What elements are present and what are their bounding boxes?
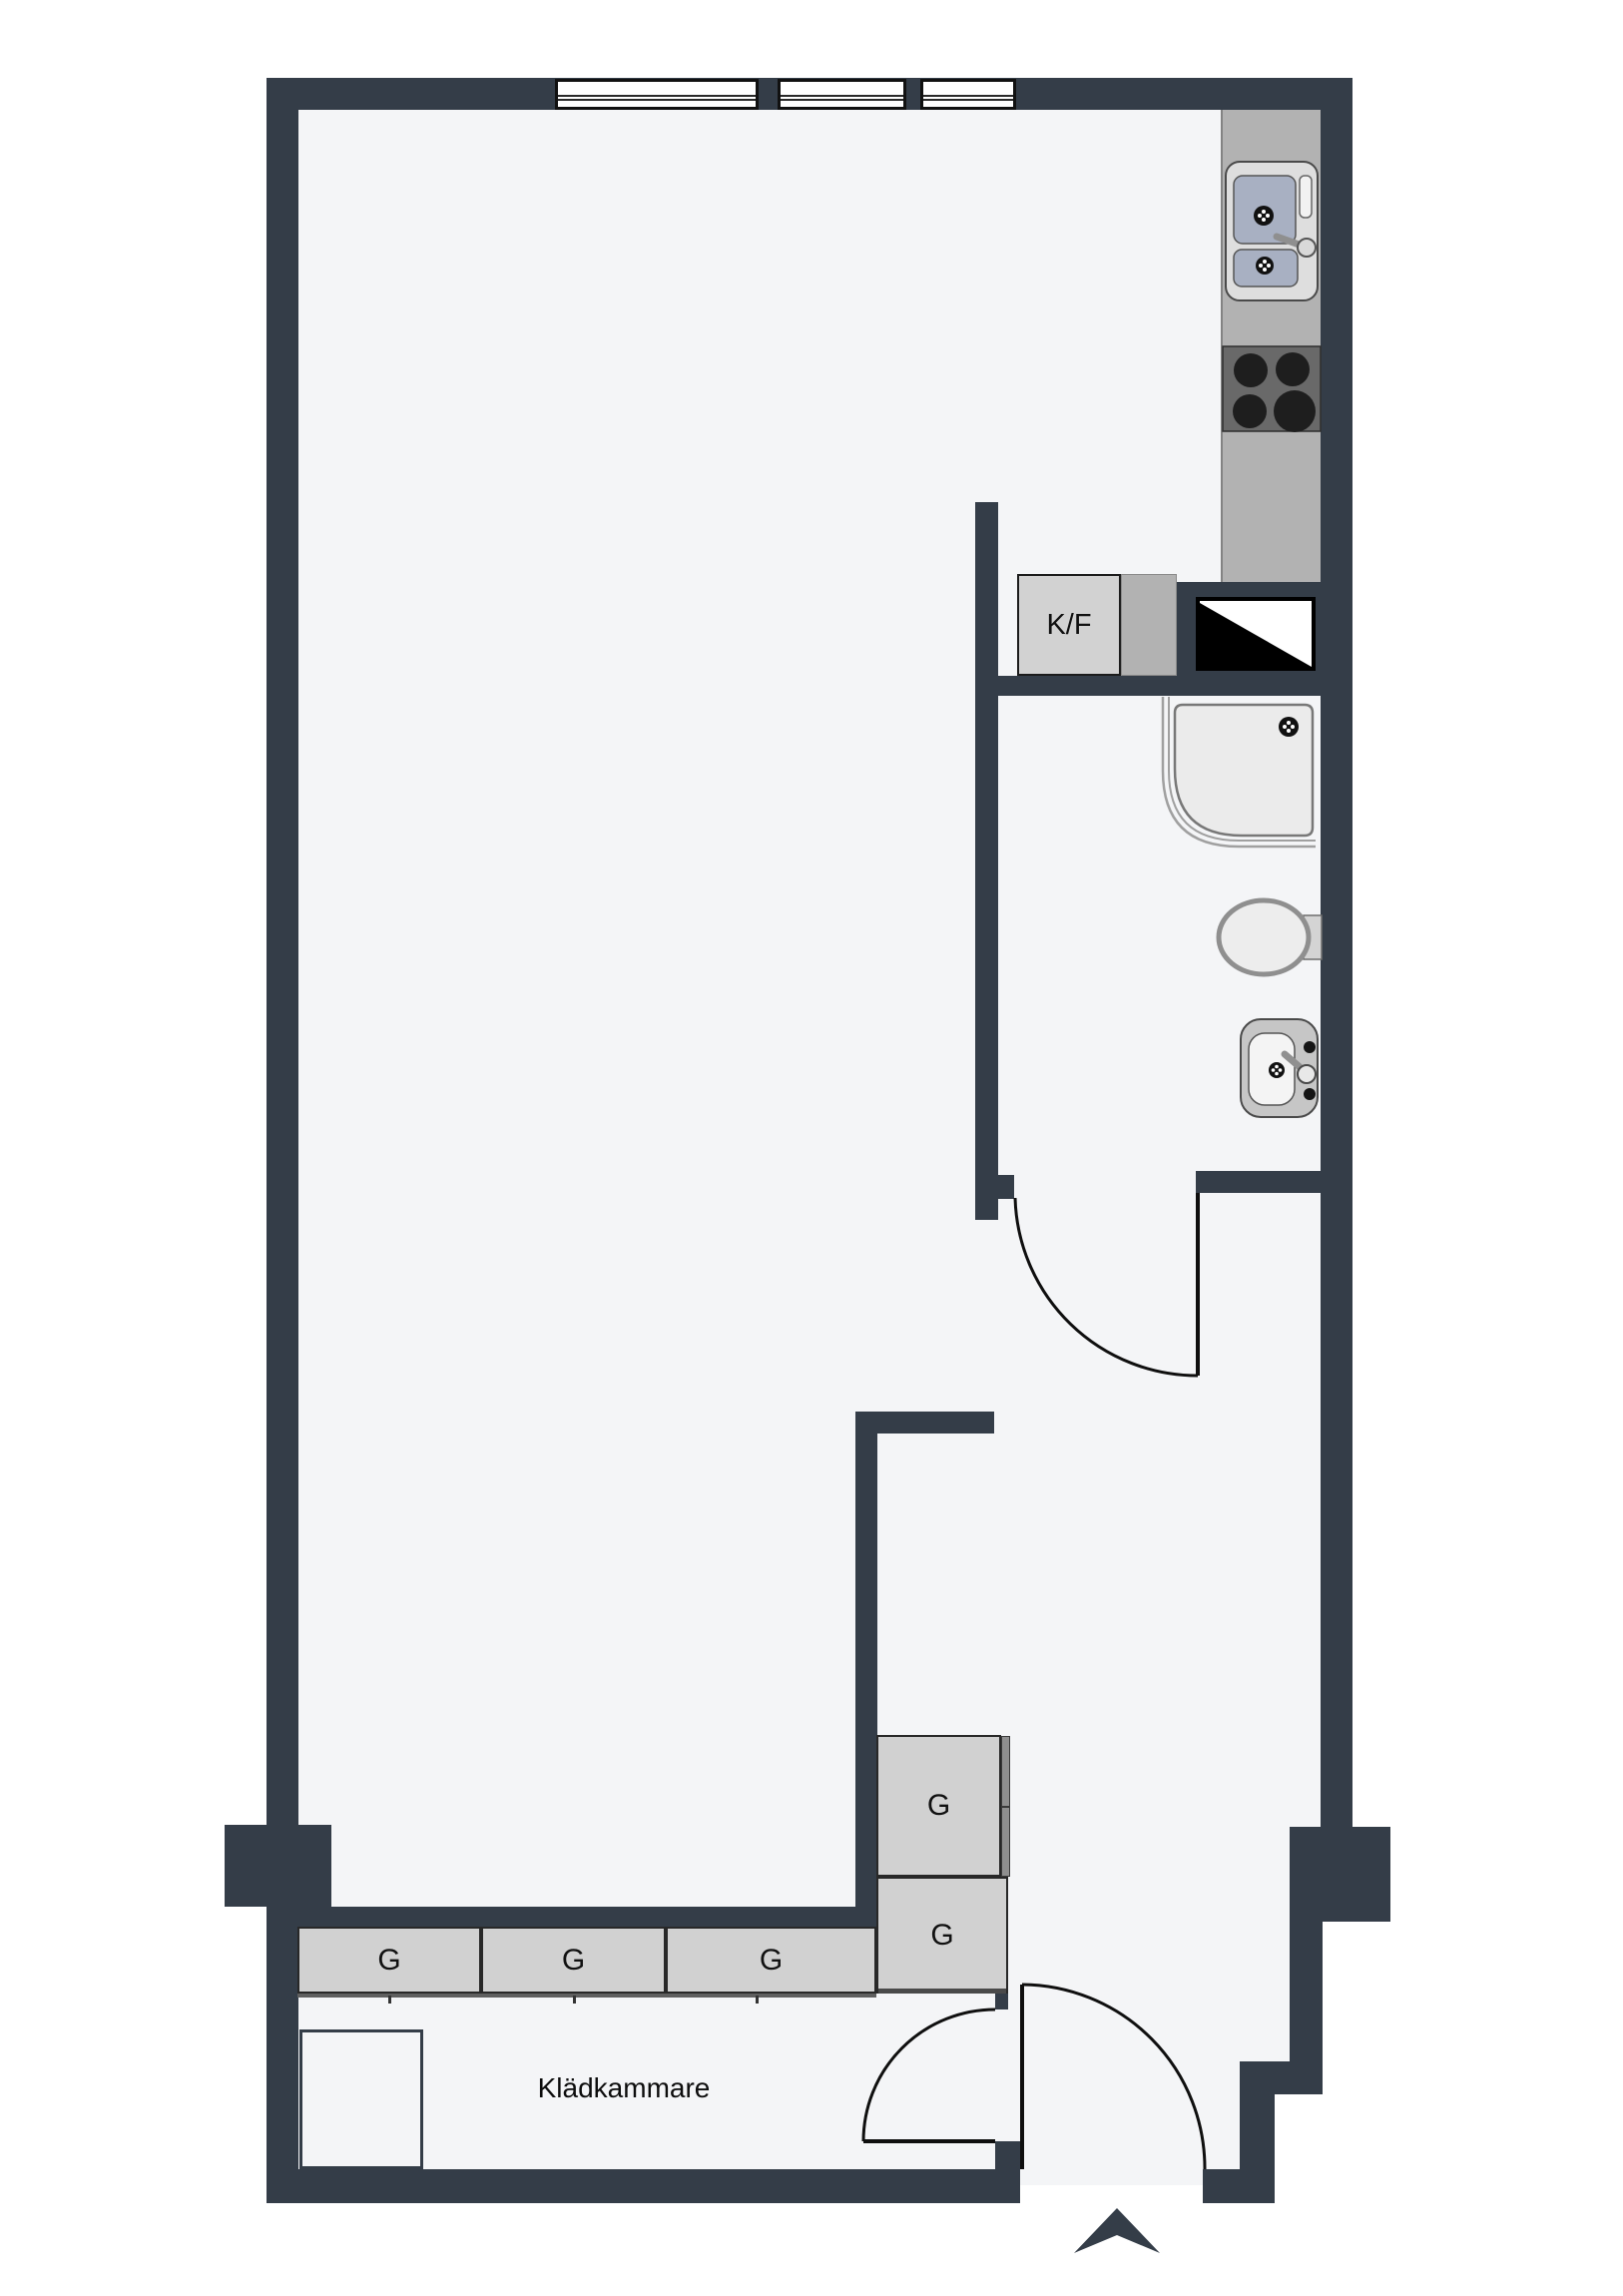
entrance-arrow-icon xyxy=(1074,2208,1160,2253)
drain-icon xyxy=(1279,717,1299,737)
drain-icon xyxy=(1254,206,1274,226)
entrance-door-swing-icon xyxy=(1022,1985,1205,2169)
fridge-symbol-icon xyxy=(1198,599,1314,669)
faucet-knob xyxy=(1298,239,1316,257)
drain-icon xyxy=(1256,257,1274,275)
washbasin-icon xyxy=(1241,1019,1318,1117)
closet-door-swing-icon xyxy=(863,2009,995,2141)
fixtures-overlay xyxy=(0,0,1623,2296)
shower-icon xyxy=(1163,697,1316,847)
stove-icon xyxy=(1223,346,1321,432)
faucet-knob xyxy=(1298,1065,1316,1083)
drain-icon xyxy=(1269,1062,1285,1078)
bathroom-door-swing-icon xyxy=(1015,1193,1198,1376)
kitchen-sink-icon xyxy=(1226,162,1318,300)
toilet-icon xyxy=(1219,900,1322,974)
